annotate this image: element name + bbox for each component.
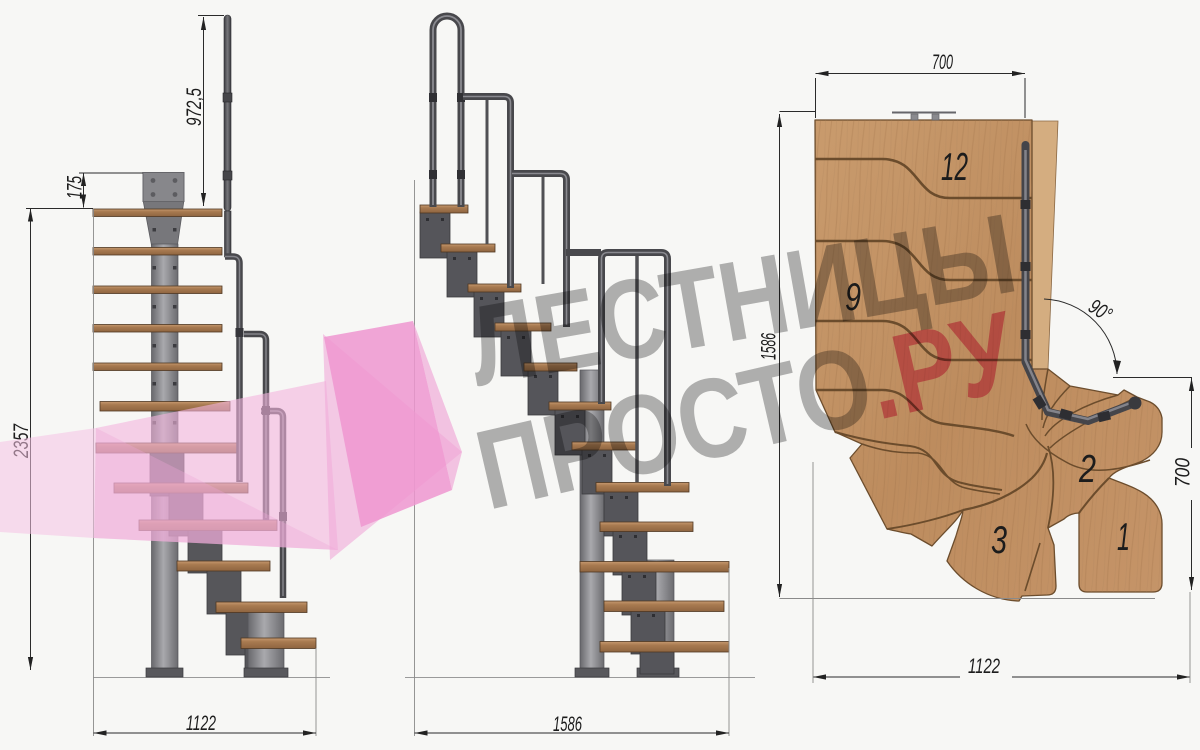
svg-text:700: 700 [932, 51, 953, 74]
svg-text:1: 1 [1117, 516, 1130, 559]
svg-text:700: 700 [1172, 458, 1195, 487]
svg-text:1122: 1122 [968, 655, 1000, 678]
svg-text:12: 12 [941, 146, 968, 189]
svg-text:2: 2 [1078, 448, 1096, 491]
svg-text:1122: 1122 [186, 712, 216, 735]
svg-text:1586: 1586 [553, 713, 582, 736]
svg-text:972,5: 972,5 [183, 88, 206, 126]
svg-text:3: 3 [991, 519, 1007, 562]
svg-text:175: 175 [64, 176, 87, 199]
